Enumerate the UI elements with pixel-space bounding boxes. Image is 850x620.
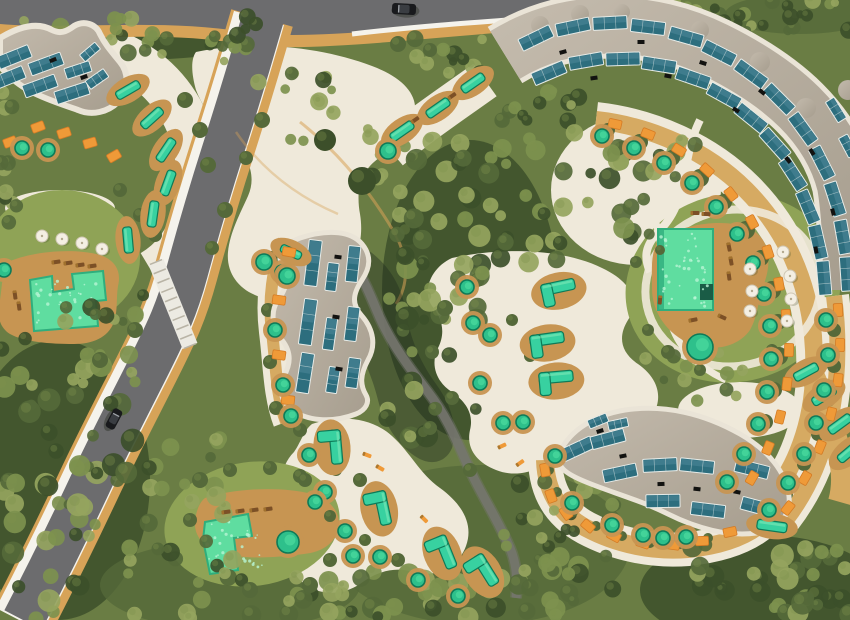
tree-highlight [144,481,152,489]
tree-highlight [179,94,186,101]
tree [193,577,204,588]
round-pool [757,498,781,522]
tree-highlight [543,593,551,601]
tree [206,486,226,506]
tree [661,345,675,359]
tree [423,43,437,57]
tree [12,580,25,593]
pool-sparkle [213,536,216,539]
tree [541,591,559,609]
tree-highlight [513,477,521,485]
tree-highlight [91,520,96,525]
tree-highlight [840,563,846,569]
tree-highlight [842,23,850,31]
tree [582,197,594,209]
tree [457,211,473,227]
tree-highlight [635,163,645,173]
tree-highlight [398,248,406,256]
pool-sparkle [225,533,228,536]
tree-highlight [195,593,203,601]
tree-highlight [408,294,415,301]
tree [670,171,681,182]
tree-highlight [735,11,741,17]
tree-highlight [304,579,311,586]
pool-sparkle [59,301,61,303]
round-pool [651,526,675,550]
tree [495,210,506,221]
tree [205,452,216,463]
tree [183,513,197,527]
tree [457,53,469,65]
tree-highlight [231,28,239,36]
tree-highlight [355,474,361,480]
tree [527,509,543,525]
pool-sparkle [36,321,38,323]
tree [285,134,296,145]
tree [538,207,551,220]
tree-highlight [572,90,580,98]
tree-highlight [671,172,676,177]
tree-highlight [794,594,804,604]
tree-highlight [555,237,561,243]
tree [177,92,193,108]
tree-highlight [508,315,513,320]
pool-sparkle [35,292,39,296]
tree-highlight [564,569,570,575]
tree-highlight [457,152,465,160]
pool-sparkle [702,288,704,290]
pool-sparkle [248,559,251,562]
tree-highlight [817,547,823,553]
car-cabin [399,5,410,14]
tree-highlight [111,24,117,30]
tree-highlight [656,246,661,251]
tree-highlight [472,404,477,409]
round-pool [446,584,470,608]
pool-sparkle [663,287,666,290]
tree-highlight [85,300,93,308]
tree [323,583,342,602]
tree-highlight [201,536,207,542]
tree-highlight [528,237,536,245]
round-pool [279,404,303,428]
tree-highlight [40,391,50,401]
tree-highlight [496,114,503,121]
tree [642,324,654,336]
tree [497,234,514,251]
round-pool [680,171,704,195]
tree-highlight [415,232,424,241]
tree [327,86,336,95]
tree-highlight [465,464,471,470]
tree [449,57,457,65]
tree-highlight [562,114,569,121]
round-pool [600,513,624,537]
tree [239,151,253,165]
pool-sparkle [257,534,258,535]
tree-highlight [614,206,623,215]
tree-highlight [562,525,567,530]
pool-sparkle [664,238,667,241]
tree [10,199,23,212]
tree [302,577,318,593]
tree [263,461,277,475]
tree-highlight [100,309,107,316]
pool-sparkle [662,268,664,270]
tree-highlight [832,545,838,551]
tree [209,30,221,42]
tree [623,199,640,216]
tree [733,10,745,22]
tree [192,122,208,138]
tree [830,544,844,558]
tree [130,376,141,387]
tree-highlight [488,600,497,609]
tree-highlight [641,353,647,359]
tree [585,168,596,179]
tree-highlight [265,356,271,362]
tree-highlight [122,46,130,54]
pool-sparkle [667,280,670,283]
tree-highlight [39,533,48,542]
tree [298,473,312,487]
tree-highlight [601,170,611,180]
tree [69,528,82,541]
tree [419,315,429,325]
pool-sparkle [49,293,52,296]
tree-highlight [773,599,780,606]
tree [428,402,442,416]
tree-highlight [601,551,607,557]
pool-sparkle [702,278,705,281]
tree [442,347,458,363]
tree-highlight [394,208,401,215]
pool-sparkle [665,245,667,247]
tree-highlight [418,258,424,264]
tree-highlight [6,513,16,523]
tree [83,530,95,542]
tree [506,314,518,326]
tree [200,157,216,173]
tree-highlight [5,544,15,554]
tree-highlight [486,153,492,159]
tree-highlight [427,346,433,352]
tree [777,568,799,590]
tree [425,345,439,359]
tree [463,463,477,477]
tree-highlight [391,228,398,235]
tree-highlight [54,20,62,28]
tree [192,472,208,488]
round-pool [455,275,479,299]
tree-highlight [542,86,549,93]
tree-highlight [569,596,574,601]
tree-highlight [3,216,10,223]
round-pool [590,124,614,148]
pool-sparkle [59,304,60,305]
tree [254,112,270,128]
solar-panel [593,16,628,31]
round-pool [758,314,782,338]
tree-highlight [265,462,271,468]
tree-highlight [54,498,60,504]
tree [161,543,180,562]
round-pool [816,343,840,367]
tree-highlight [364,130,371,137]
pool-sparkle [78,292,80,294]
tree [521,115,532,126]
tree-highlight [325,554,331,560]
tree [630,256,642,268]
tree-highlight [553,549,562,558]
round-pool [560,491,584,515]
round-pool [674,525,698,549]
tree [70,576,90,596]
tree-highlight [495,141,503,149]
pool-sparkle [687,267,690,270]
tree [289,570,303,584]
round-pool [375,138,401,164]
tree-highlight [438,163,448,173]
tree [92,352,108,368]
round-pool [755,380,779,404]
tree-highlight [430,403,436,409]
tree [660,376,669,385]
tree-highlight [82,349,89,356]
tree-highlight [143,462,150,469]
tree-highlight [241,10,249,18]
tree-highlight [91,310,96,315]
tree [90,519,101,530]
tree-highlight [71,529,77,535]
round-pool [271,373,295,397]
tree-highlight [625,200,632,207]
tree [430,213,447,230]
tree [405,381,424,400]
tree [152,543,165,556]
tree-highlight [62,302,68,308]
tree-highlight [639,194,645,200]
tree-highlight [562,586,570,594]
tree-highlight [493,250,502,259]
tree [511,475,529,493]
tree-highlight [115,184,121,190]
round-pool [263,318,287,342]
pool-sparkle [221,529,224,532]
tree-highlight [679,374,686,381]
solar-panel [646,494,680,508]
tree [396,246,415,265]
tree [127,322,143,338]
tree [315,72,331,88]
tree [362,128,379,145]
round-pool [682,329,718,365]
tree-highlight [738,366,743,371]
tree-highlight [411,51,418,58]
tree-highlight [407,383,415,391]
tree-highlight [517,514,523,520]
pool-sparkle [78,316,81,319]
tree [386,416,396,426]
tree [554,531,567,544]
tree-highlight [677,136,683,142]
tree [352,569,369,586]
tree-highlight [41,592,51,602]
tree-highlight [461,609,470,618]
tree-highlight [300,474,306,480]
tree-highlight [161,33,167,39]
tree-highlight [556,200,565,209]
tree-highlight [256,114,263,121]
tree [518,252,539,273]
tree-highlight [472,256,482,266]
pool-sparkle [691,233,693,235]
tree-highlight [325,585,334,594]
tree [67,493,90,516]
tree [470,403,482,415]
tree-highlight [452,272,459,279]
tree-highlight [94,354,101,361]
tree-highlight [141,45,147,51]
tree [38,388,61,411]
pool-sparkle [208,558,210,560]
tree-highlight [202,159,209,166]
tree [451,134,470,153]
tree-highlight [392,38,399,45]
tree-highlight [425,422,431,428]
tree-highlight [321,573,330,582]
sun-lounger [658,295,663,304]
tree-highlight [521,604,529,612]
tree [486,598,506,618]
tree [655,245,665,255]
tree-highlight [77,361,86,370]
tree [18,400,41,423]
tree [5,494,24,513]
tree-highlight [568,126,576,134]
tree [731,391,742,402]
tree-highlight [398,309,409,320]
tree-highlight [477,267,484,274]
tree-highlight [433,215,441,223]
tree [298,136,308,146]
tree-highlight [550,253,558,261]
tree [549,505,559,515]
tree [110,23,123,36]
tree-highlight [799,542,806,549]
tree [445,391,459,405]
tree [223,550,242,569]
tree-highlight [519,111,524,116]
tree [90,309,101,320]
tree [554,198,573,217]
tree [710,3,720,13]
tree-highlight [194,474,201,481]
tree-highlight [326,511,331,516]
tree [548,251,566,269]
tree-highlight [485,199,492,206]
pool-sparkle [704,269,706,271]
tree-highlight [153,544,159,550]
tree [815,545,829,559]
resort-masterplan-aerial-render [0,0,850,620]
tree [516,513,529,526]
tree-highlight [315,97,320,102]
tree-highlight [406,210,415,219]
pool-sparkle [703,305,706,308]
tree-highlight [388,600,396,608]
tree [518,603,535,620]
tree-highlight [453,136,461,144]
tree-highlight [555,532,561,538]
tree-highlight [752,583,761,592]
tree [38,589,61,612]
tree-highlight [7,496,16,505]
tree-highlight [194,124,201,131]
pool-sparkle [38,319,40,321]
round-pool [333,519,357,543]
tree [66,386,84,404]
tree-highlight [510,103,516,109]
tree [115,462,137,484]
tree [423,132,443,152]
pool-sparkle [73,298,76,301]
tree-highlight [632,257,637,262]
tree [782,8,799,25]
tree-highlight [219,204,226,211]
round-pool [732,442,756,466]
tree [6,474,25,493]
sun-lounger [691,211,700,215]
tree-highlight [521,254,530,263]
tree-highlight [207,242,213,248]
pool-sparkle [695,245,697,247]
tree-highlight [125,555,131,561]
pool-sparkle [37,311,40,314]
round-pool [511,410,535,434]
tree-highlight [84,531,89,536]
tree-highlight [409,32,417,40]
tree-highlight [397,303,403,309]
tree [750,581,771,602]
tree [519,564,532,577]
round-pool [36,138,60,162]
tree [477,35,487,45]
pool-sparkle [35,283,37,285]
tree [283,595,295,607]
pool-sparkle [217,554,219,556]
tree-highlight [696,365,701,370]
tree-highlight [328,107,334,113]
tree-highlight [529,511,536,518]
tree [520,189,533,202]
pool-sparkle [700,302,702,304]
round-pool [759,347,783,371]
tree [604,581,621,598]
tree-highlight [105,397,112,404]
tree [389,227,404,242]
tree-highlight [835,591,844,600]
tree-highlight [511,576,520,585]
pool-sparkle [691,260,693,262]
tree [220,57,229,66]
tree [128,308,144,324]
tree-highlight [92,468,98,474]
tree-highlight [135,209,141,215]
tree-highlight [185,514,191,520]
tree [346,606,358,618]
pool-sparkle [683,261,685,263]
